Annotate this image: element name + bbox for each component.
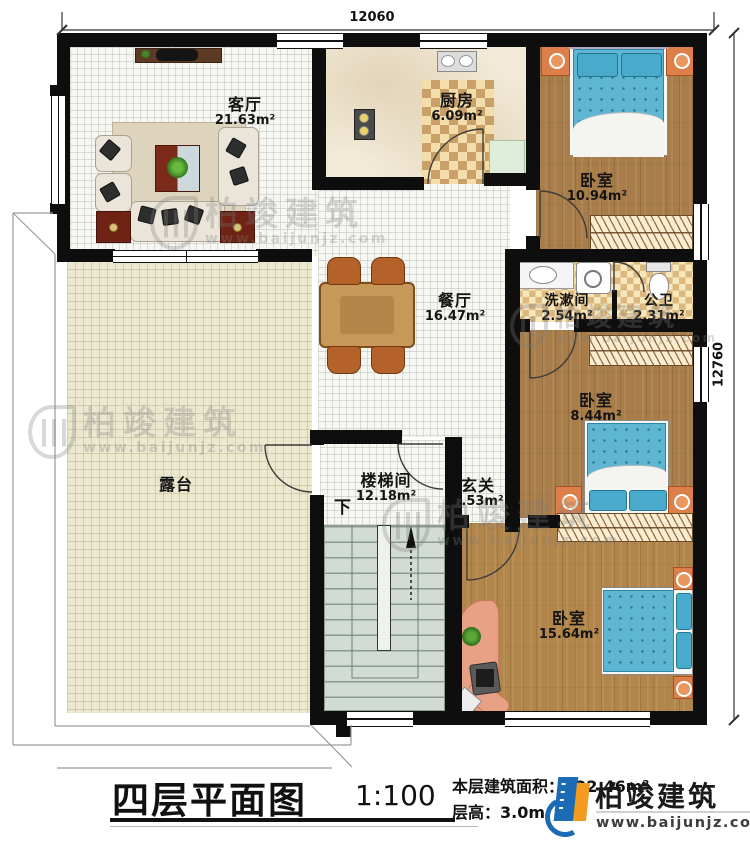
brand-building-accent-icon <box>573 783 590 821</box>
bed-sheet <box>573 112 664 157</box>
room-label-washroom: 洗漱间 2.54m² <box>541 294 592 324</box>
toilet-tank <box>646 262 671 272</box>
brand-name: 柏竣建筑 <box>595 775 719 815</box>
nightstand <box>673 567 693 590</box>
room-label-stairwell: 楼梯间 12.18m² <box>356 472 416 504</box>
room-label-bedroom2: 卧室 8.44m² <box>570 392 621 424</box>
room-label-kitchen: 厨房 6.09m² <box>431 92 482 124</box>
sliding-door <box>113 250 258 263</box>
window <box>51 96 66 204</box>
plan-title: 四层平面图 <box>112 770 307 824</box>
window <box>693 347 709 402</box>
stair-direction-label: 下 <box>334 499 352 518</box>
sofa-pillow <box>161 208 179 226</box>
room-label-foyer: 玄关 3.53m² <box>452 477 503 509</box>
wall <box>57 249 115 262</box>
dimension-right: 12760 <box>712 335 727 395</box>
room-label-terrace: 露台 <box>159 476 193 494</box>
wall <box>310 495 324 725</box>
bed-pillow <box>676 632 692 669</box>
wall <box>526 40 540 190</box>
sink-basin-icon <box>459 55 473 67</box>
brand-url: www.baijunjz.com <box>596 811 750 831</box>
bed-pillow <box>676 593 692 630</box>
floor-plan-canvas: 12060 12760 客厅 21.63m² 厨房 6.09m² 卧室 10.9… <box>0 0 750 850</box>
washer-drum-icon <box>584 270 602 288</box>
wall <box>520 319 530 332</box>
wall <box>310 430 402 444</box>
closet <box>557 513 693 542</box>
room-label-toilet: 公卫 2.31m² <box>633 294 684 324</box>
plan-scale: 1:100 <box>355 779 436 812</box>
nightstand <box>668 486 694 516</box>
window <box>505 711 650 727</box>
room-label-bedroom1: 卧室 10.94m² <box>567 172 627 204</box>
floor-height-text: 层高：3.0m <box>452 799 545 823</box>
closet <box>589 335 693 366</box>
wall <box>50 203 70 214</box>
bed-pillow <box>621 53 662 77</box>
wall <box>528 515 560 528</box>
plant-icon <box>167 157 188 178</box>
sink-basin-icon <box>441 55 455 67</box>
wall <box>312 47 326 190</box>
title-underline <box>110 818 455 822</box>
burner-icon <box>359 126 369 136</box>
bed-pillow <box>629 490 667 511</box>
room-label-dining: 餐厅 16.47m² <box>425 292 485 324</box>
wall <box>57 33 707 47</box>
room-label-living: 客厅 21.63m² <box>215 96 275 128</box>
burner-icon <box>359 113 369 123</box>
window <box>693 204 709 260</box>
nightstand <box>673 676 693 699</box>
dining-chair <box>371 346 405 374</box>
dimension-top: 12060 <box>346 10 398 25</box>
window <box>420 33 487 49</box>
wall <box>505 249 520 532</box>
wall <box>312 177 424 190</box>
nightstand <box>541 44 570 76</box>
wall <box>505 249 695 262</box>
wall <box>484 173 526 186</box>
window <box>347 711 413 727</box>
dining-chair <box>371 257 405 285</box>
stair-railing <box>377 525 391 651</box>
table-runner <box>340 296 394 334</box>
wall <box>256 249 312 262</box>
table-knob-icon <box>233 223 242 232</box>
dining-chair <box>327 257 361 285</box>
plant-icon <box>141 50 150 58</box>
nightstand <box>666 44 695 76</box>
plant-icon <box>462 627 481 646</box>
bed-pillow <box>577 53 618 77</box>
tv <box>156 49 198 61</box>
table-knob-icon <box>109 223 118 232</box>
fridge <box>489 140 525 175</box>
monitor-screen-icon <box>476 669 494 687</box>
nightstand <box>555 486 582 516</box>
bed-sheet <box>587 465 666 488</box>
title-underline-thin <box>110 826 478 827</box>
bed-pillow <box>589 490 627 511</box>
wall <box>50 85 70 96</box>
bed-mattress <box>603 590 674 672</box>
window <box>277 33 343 49</box>
brand-logo: 柏竣建筑 www.baijunjz.com <box>543 773 748 837</box>
closet <box>590 215 693 250</box>
washbasin-icon <box>529 266 557 284</box>
dining-chair <box>327 346 361 374</box>
room-label-bedroom3: 卧室 15.64m² <box>539 610 599 642</box>
